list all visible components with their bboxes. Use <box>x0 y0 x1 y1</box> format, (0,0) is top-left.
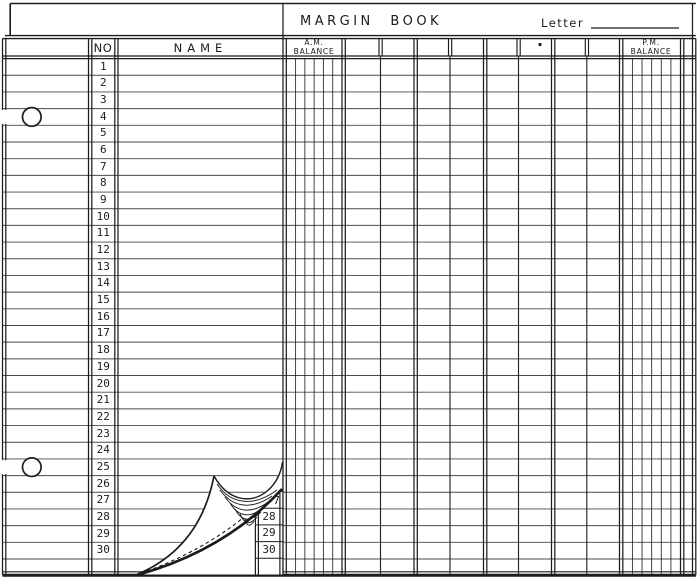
under-page-partial-row-number: 7 <box>270 494 283 508</box>
am-label-line2: BALANCE <box>286 48 342 57</box>
row-number: 2 <box>89 75 119 92</box>
row-number: 10 <box>89 209 119 226</box>
row-number: 3 <box>89 92 119 109</box>
under-page-row-number: 28 <box>258 510 280 524</box>
row-number: 11 <box>89 225 119 242</box>
column-header-name: NAME <box>118 41 283 55</box>
pm-label-line2: BALANCE <box>622 48 680 57</box>
page-title: MARGIN BOOK <box>300 14 442 29</box>
under-page-row-number: 29 <box>258 526 280 540</box>
row-number: 27 <box>89 492 119 509</box>
row-number: 29 <box>89 526 119 543</box>
row-number: 7 <box>89 159 119 176</box>
row-number: 8 <box>89 175 119 192</box>
under-page-row-number: 30 <box>258 543 280 557</box>
row-number: 20 <box>89 376 119 393</box>
row-number: 26 <box>89 476 119 493</box>
margin-book-page: MARGIN BOOK Letter NO NAME A.M. BALANCE … <box>0 0 700 582</box>
row-number: 12 <box>89 242 119 259</box>
row-number: 13 <box>89 259 119 276</box>
row-number: 22 <box>89 409 119 426</box>
row-number: 24 <box>89 442 119 459</box>
letter-label: Letter <box>541 16 584 30</box>
row-number: 25 <box>89 459 119 476</box>
row-number: 23 <box>89 426 119 443</box>
row-number: 6 <box>89 142 119 159</box>
row-number: 21 <box>89 392 119 409</box>
row-number: 18 <box>89 342 119 359</box>
row-number: 15 <box>89 292 119 309</box>
row-number: 5 <box>89 125 119 142</box>
row-number: 4 <box>89 109 119 126</box>
row-number: 30 <box>89 542 119 559</box>
column-header-no: NO <box>88 41 118 55</box>
row-number: 19 <box>89 359 119 376</box>
column-header-pm-balance: P.M. BALANCE <box>622 39 680 56</box>
row-number: 14 <box>89 275 119 292</box>
row-number: 9 <box>89 192 119 209</box>
row-number: 1 <box>89 59 119 76</box>
column-header-am-balance: A.M. BALANCE <box>286 39 342 56</box>
row-number: 17 <box>89 325 119 342</box>
row-number: 28 <box>89 509 119 526</box>
row-number: 16 <box>89 309 119 326</box>
